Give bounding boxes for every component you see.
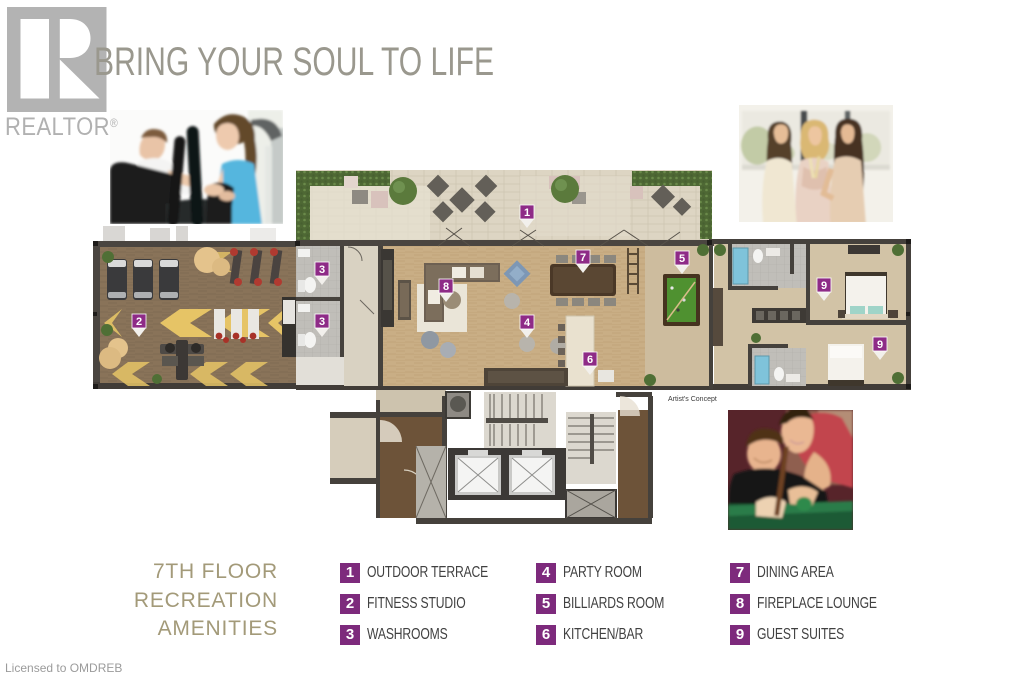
svg-text:5: 5 bbox=[679, 253, 685, 265]
svg-text:7: 7 bbox=[580, 252, 586, 264]
svg-text:3: 3 bbox=[319, 316, 325, 328]
svg-text:8: 8 bbox=[443, 281, 449, 293]
svg-text:3: 3 bbox=[319, 264, 325, 276]
svg-text:6: 6 bbox=[587, 354, 593, 366]
svg-text:1: 1 bbox=[524, 207, 530, 219]
svg-text:9: 9 bbox=[877, 339, 883, 351]
svg-text:Artist's Concept: Artist's Concept bbox=[668, 396, 717, 403]
svg-text:4: 4 bbox=[524, 317, 531, 329]
svg-text:2: 2 bbox=[136, 316, 142, 328]
svg-text:9: 9 bbox=[821, 280, 827, 292]
